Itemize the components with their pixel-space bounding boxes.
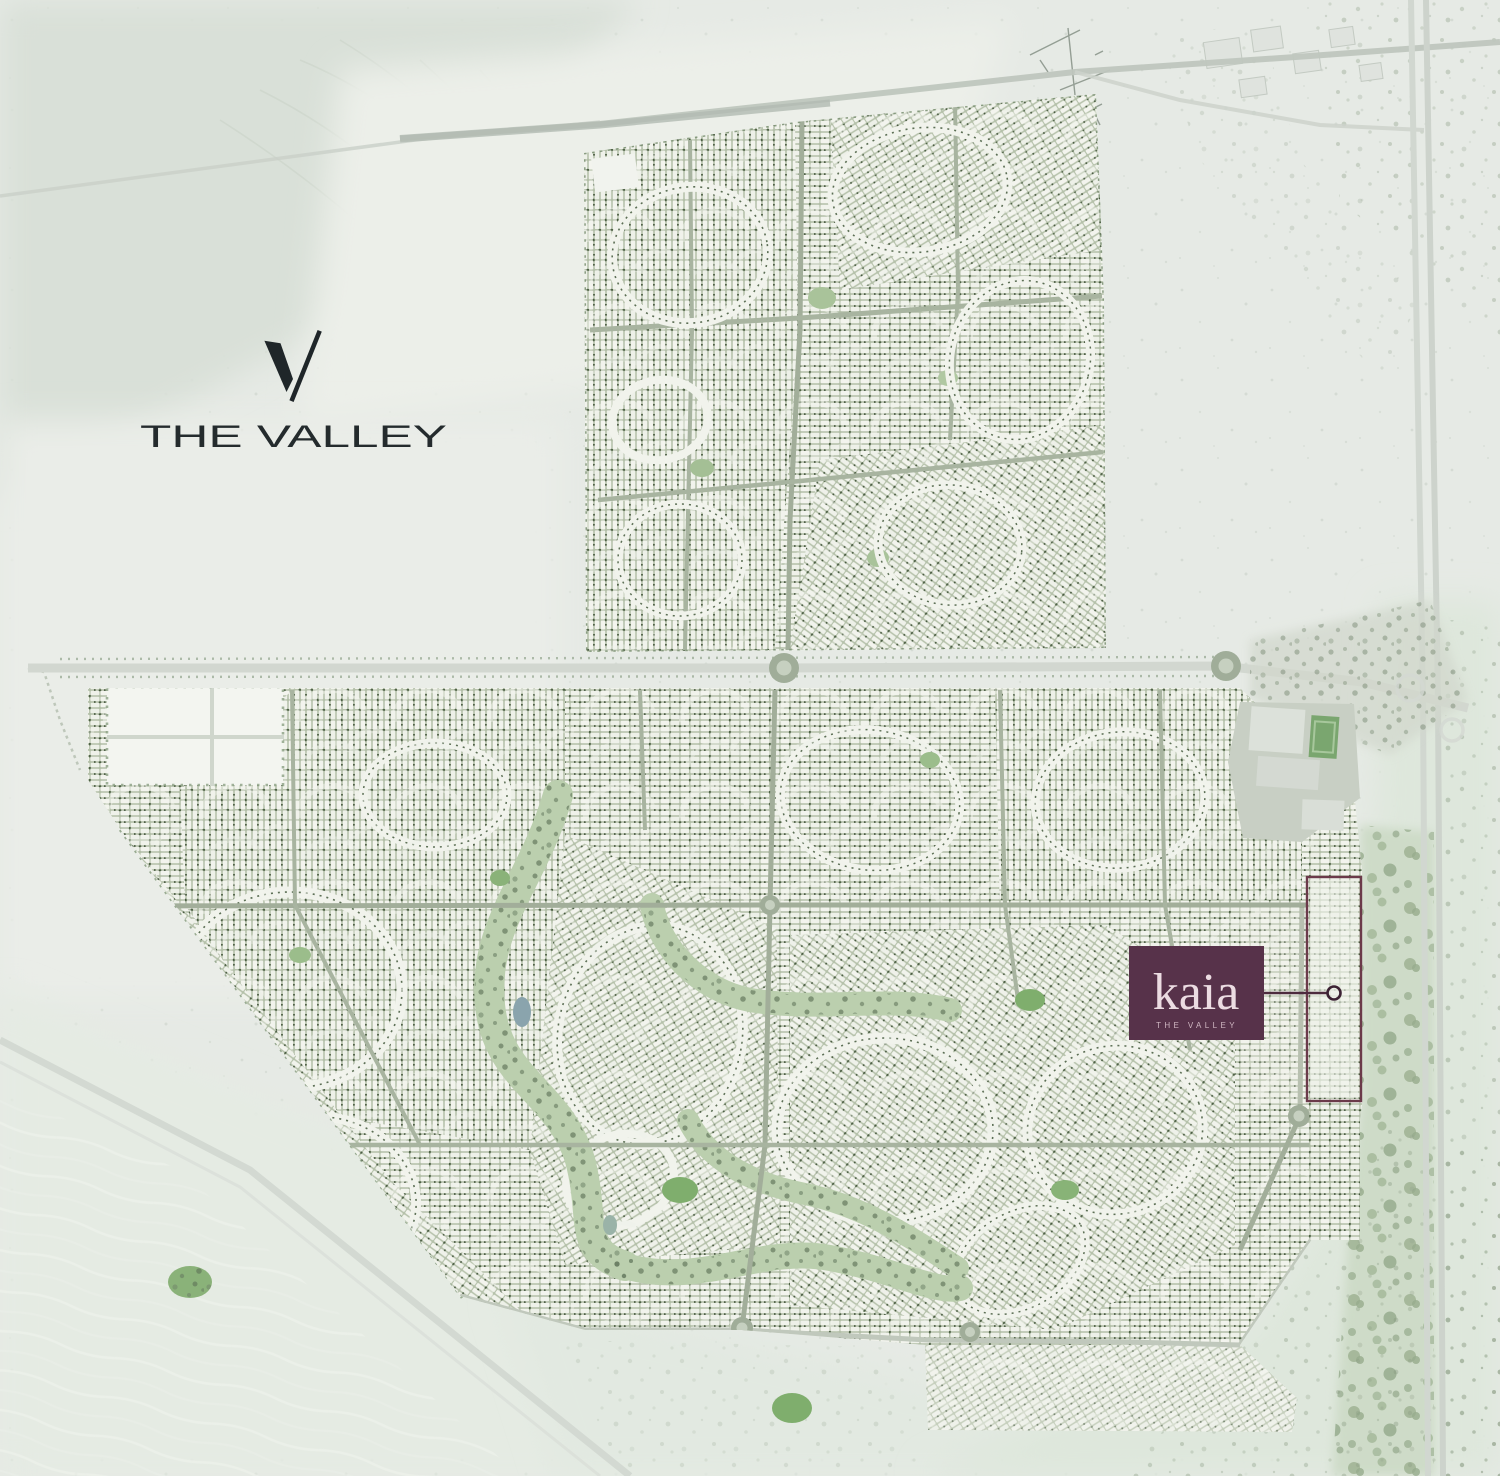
svg-text:THE VALLEY: THE VALLEY: [140, 418, 447, 454]
svg-text:kaia: kaia: [1153, 964, 1240, 1021]
svg-text:THE VALLEY: THE VALLEY: [1156, 1021, 1238, 1030]
